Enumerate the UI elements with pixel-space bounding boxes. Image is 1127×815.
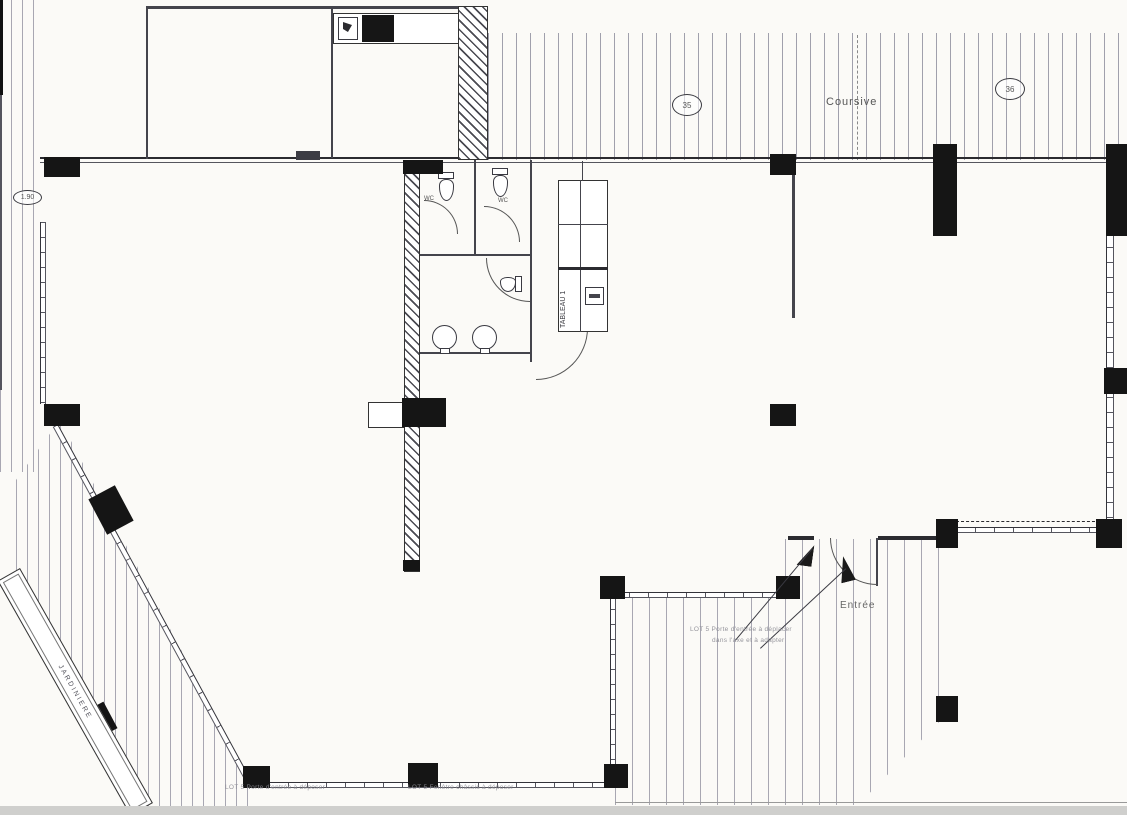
column [1106,144,1127,236]
scan-edge-left [0,0,3,95]
wc-stall-divider [474,160,476,255]
wc1-door-swing [424,200,458,234]
toilet-bowl-1 [439,179,454,201]
entrance-wall-right-segment [878,536,942,540]
notch-vertical-window [610,594,616,784]
notch-horizontal-window [610,592,780,598]
core-right-wall [530,160,532,362]
left-window-band [40,222,46,404]
column [402,398,446,427]
core-thick-wall [404,160,420,572]
note-entrance-line2: dans l'axe et à adapter [712,637,784,644]
column [936,519,958,548]
top-facade-wall [40,157,1127,163]
wc2-door-swing [484,206,520,242]
toilet-tank-2 [492,168,508,175]
tableau-connector [582,161,583,181]
scan-edge-bottom [0,806,1127,815]
column [936,696,958,722]
column [933,144,957,236]
annex-left-wall [146,6,148,159]
toilet-bowl-2 [493,175,508,197]
core-wall-bottom-cap [403,560,420,571]
mid-partition [792,173,795,318]
tableau-label: TABLEAU 1 [560,248,567,328]
core-bottom-wall [420,352,532,354]
grid-bubble-left: 35 [672,94,702,116]
wash-basin-2-base [480,348,490,354]
coursive-walkway-hatch [488,33,1127,160]
grid-bubble-right: 36 [995,78,1025,100]
note-bottom-left: LOT 5 Porte d'entrée à déposer [225,784,325,791]
column [604,764,628,788]
column [44,157,80,177]
column [44,404,80,426]
wc-mid-wall [420,254,532,256]
wc3-door-swing [486,258,530,302]
note-bottom-center: LOT 5 Fenêtre châssis à déposer [408,784,514,791]
lobby-door-swing [536,328,588,380]
ground-line [615,802,1127,803]
wash-basin-1-base [440,348,450,354]
tableau-closet-divider [580,180,581,332]
terrace-hatch [16,420,258,815]
floor-plan-canvas: WC WC TABLEAU 1 JARDINIERE Coursive 35 3… [0,0,1127,815]
right-wing-dashed-edge [956,521,1100,522]
column [403,160,443,174]
scan-edge-left-faint [0,95,2,390]
coursive-label: Coursive [826,96,877,108]
wash-basin-2 [472,325,497,350]
kitchen-appliance-block [362,15,394,42]
entrance-deck-hatch [615,523,945,805]
wc-label-2: WC [498,198,508,204]
entree-label: Entrée [840,600,875,611]
tableau-meter-glyph [589,294,600,298]
wash-basin-1 [432,325,457,350]
tableau-closet-shelf [558,224,608,225]
column [1096,519,1122,548]
dimension-oval: 1.90 [13,190,42,205]
column [770,404,796,426]
right-wing-bottom-window [956,527,1100,533]
column [770,154,796,175]
wc-label-1: WC [424,196,434,202]
annex-right-thick-wall [458,6,488,160]
annex-door-sill [296,151,320,160]
note-entrance-line1: LOT 5 Porte d'entrée à déplacer [690,626,792,633]
column [600,576,625,599]
left-walkway-hatch [0,0,42,472]
pier-attached-box [368,402,404,428]
column [1104,368,1127,394]
annex-top-wall [146,6,462,9]
entrance-wall-left-segment [788,536,814,540]
